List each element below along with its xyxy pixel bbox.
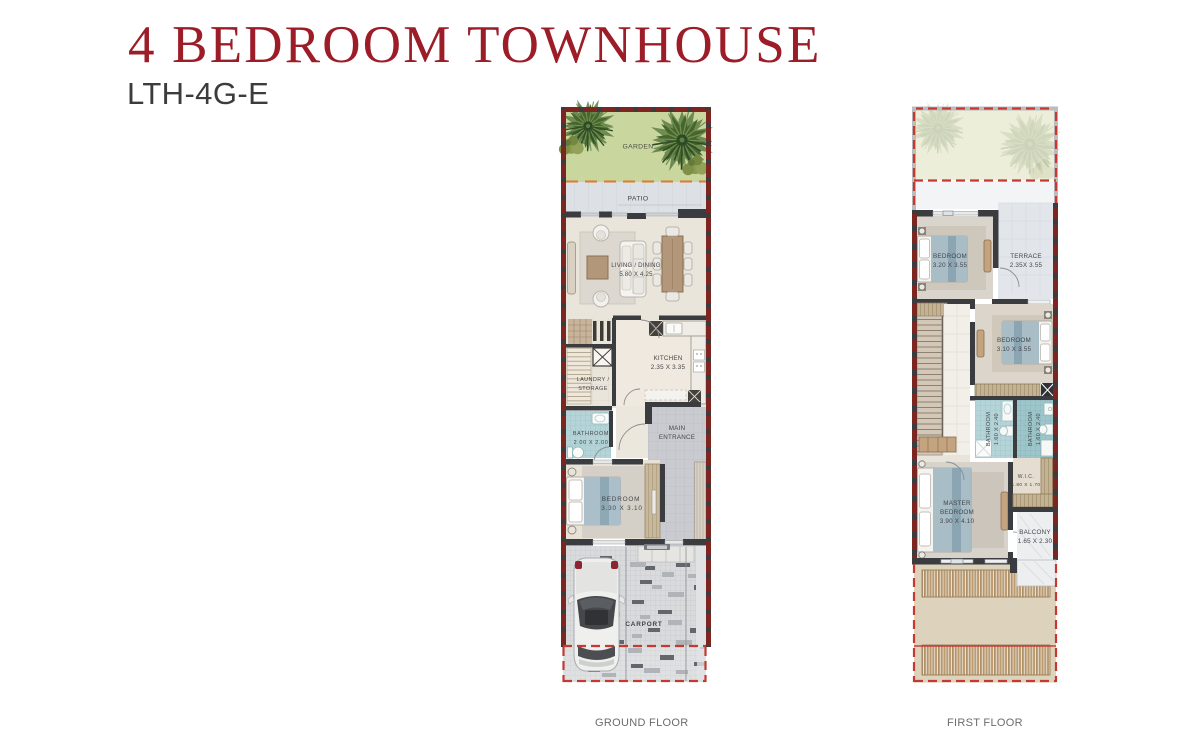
svg-text:5.80 X 4.25: 5.80 X 4.25 — [619, 271, 653, 278]
svg-text:BEDROOM: BEDROOM — [940, 509, 974, 516]
svg-text:BATHROOM: BATHROOM — [573, 431, 609, 437]
svg-text:ENTRANCE: ENTRANCE — [659, 434, 695, 441]
svg-text:STORAGE: STORAGE — [578, 386, 608, 392]
svg-text:GARDEN: GARDEN — [623, 144, 654, 151]
svg-text:1.60 X 2.40: 1.60 X 2.40 — [994, 413, 1000, 445]
svg-text:BEDROOM: BEDROOM — [933, 253, 967, 260]
svg-text:3.10 X 3.55: 3.10 X 3.55 — [997, 346, 1032, 353]
svg-text:2.35 X 3.35: 2.35 X 3.35 — [651, 364, 686, 371]
svg-text:3.20 X 3.55: 3.20 X 3.55 — [933, 262, 968, 269]
svg-text:W.I.C.: W.I.C. — [1018, 474, 1035, 480]
svg-text:CARPORT: CARPORT — [625, 621, 662, 628]
svg-text:KITCHEN: KITCHEN — [653, 355, 682, 362]
svg-text:BATHROOM: BATHROOM — [986, 412, 992, 446]
svg-text:2.00 X 2.00: 2.00 X 2.00 — [574, 440, 609, 446]
svg-text:1.80 X 1.70: 1.80 X 1.70 — [1012, 482, 1041, 488]
svg-text:3.30 X 3.10: 3.30 X 3.10 — [601, 505, 643, 512]
svg-text:PATIO: PATIO — [628, 196, 649, 203]
svg-text:2.35X 3.55: 2.35X 3.55 — [1010, 262, 1043, 269]
svg-text:LAUNDRY /: LAUNDRY / — [577, 377, 610, 383]
svg-text:3.90 X 4.10: 3.90 X 4.10 — [940, 518, 975, 525]
svg-text:BEDROOM: BEDROOM — [997, 337, 1031, 344]
svg-text:BATHROOM: BATHROOM — [1028, 412, 1034, 446]
svg-text:BALCONY: BALCONY — [1019, 529, 1051, 536]
svg-text:MAIN: MAIN — [669, 425, 686, 432]
svg-text:BEDROOM: BEDROOM — [602, 496, 641, 503]
svg-text:MASTER: MASTER — [943, 500, 971, 507]
svg-text:1.60 X 2.40: 1.60 X 2.40 — [1036, 413, 1042, 445]
svg-text:1.65 X 2.30: 1.65 X 2.30 — [1018, 538, 1053, 545]
svg-text:TERRACE: TERRACE — [1010, 253, 1042, 260]
svg-text:LIVING / DINING: LIVING / DINING — [611, 262, 660, 269]
